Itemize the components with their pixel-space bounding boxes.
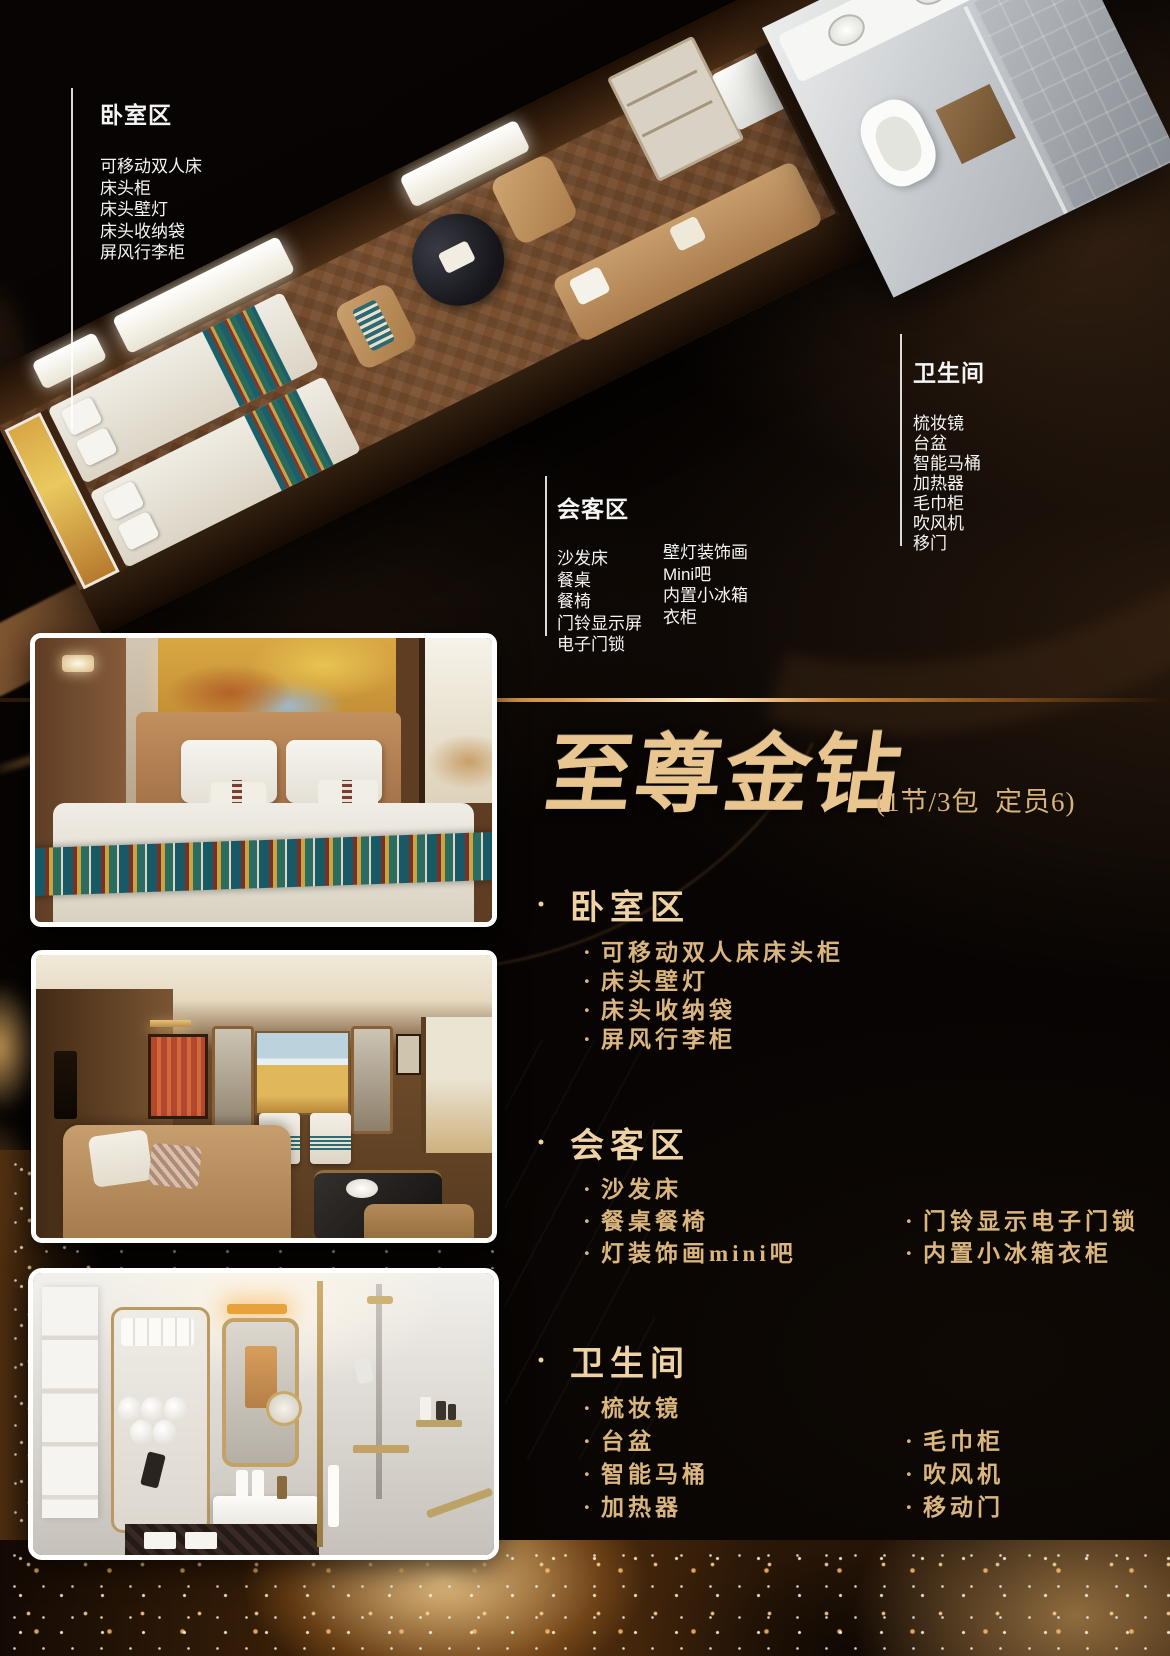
capacity-note: (1节/3包 定员6) [876, 780, 1075, 819]
plan-item: 床头收纳袋 [100, 221, 202, 243]
sparkle-dots [95, 1243, 525, 1269]
section-heading-bathroom: 卫生间 [534, 1336, 690, 1385]
feature-item: 内置小冰箱衣柜 [905, 1238, 1139, 1270]
photo-shampoo-bottle [448, 1404, 456, 1420]
section-heading-text: 卧室区 [570, 880, 690, 929]
plan-item: 餐椅 [557, 591, 642, 613]
photo-cabinet-towel [185, 1532, 217, 1549]
photo-towel-roll [130, 1420, 153, 1445]
section-heading-bedroom: 卧室区 [534, 880, 690, 929]
feature-item: 吹风机 [905, 1458, 1004, 1491]
plan-item: 吹风机 [913, 514, 985, 534]
plan-bathroom-title: 卫生间 [913, 354, 985, 388]
plan-lounge-label: 会客区 [557, 490, 629, 524]
product-title: 至尊金钻 [539, 704, 913, 829]
section-heading-text: 卫生间 [570, 1336, 690, 1385]
photo-window [421, 1017, 497, 1153]
section-heading-lounge: 会客区 [534, 1118, 690, 1167]
plan-item: 屏风行李柜 [100, 242, 202, 264]
plan-item: 内置小冰箱 [663, 585, 748, 607]
photo-small-frame [396, 1034, 421, 1075]
photo-window [419, 638, 497, 803]
feature-item: 屏风行李柜 [583, 1025, 844, 1054]
feature-item: 门铃显示电子门锁 [905, 1206, 1139, 1238]
leader-line-bathroom [900, 334, 902, 546]
photo-shampoo-bottle [436, 1401, 445, 1419]
lounge-photo [31, 950, 497, 1243]
plan-bedroom-label: 卧室区 可移动双人床 床头柜 床头壁灯 床头收纳袋 屏风行李柜 [100, 96, 202, 264]
plan-item: 电子门锁 [557, 634, 642, 656]
feature-item: 移动门 [905, 1491, 1004, 1524]
photo-wall-lamp [150, 1020, 191, 1027]
photo-folded-towels [121, 1318, 195, 1346]
photo-hanging-towel [328, 1465, 339, 1527]
feature-item: 可移动双人床床头柜 [583, 938, 844, 967]
plan-item: 壁灯装饰画 [663, 542, 748, 564]
plan-item: 餐桌 [557, 570, 642, 592]
photo-soap-bottle [236, 1470, 248, 1498]
feature-item: 床头壁灯 [583, 967, 844, 996]
plan-item: 移门 [913, 534, 985, 554]
photo-shower-shelf [353, 1445, 408, 1453]
photo-mirror [351, 1026, 393, 1134]
photo-wall-lamp [62, 655, 94, 672]
plan-item: 门铃显示屏 [557, 613, 642, 635]
plan-lounge-items-left: 沙发床 餐桌 餐椅 门铃显示屏 电子门锁 [557, 548, 642, 656]
photo-patterned-pillow [148, 1142, 202, 1189]
section-lounge-items-right: 门铃显示电子门锁 内置小冰箱衣柜 [905, 1206, 1139, 1270]
photo-wall-shelf [416, 1420, 462, 1427]
plan-item: 可移动双人床 [100, 156, 202, 178]
photo-landscape-artwork [255, 1031, 350, 1114]
bath-cabinet [936, 84, 1016, 164]
photo-shelf-column [42, 1287, 97, 1518]
feature-item: 加热器 [583, 1491, 709, 1524]
plan-bathroom-items: 梳妆镜 台盆 智能马桶 加热器 毛巾柜 吹风机 移门 [913, 414, 985, 554]
plan-item: 智能马桶 [913, 454, 985, 474]
photo-mirror-light [227, 1304, 287, 1314]
feature-item: 毛巾柜 [905, 1425, 1004, 1458]
poster-page: 卧室区 可移动双人床 床头柜 床头壁灯 床头收纳袋 屏风行李柜 会客区 沙发床 … [0, 0, 1170, 1656]
plan-item: 加热器 [913, 474, 985, 494]
section-bedroom-items: 可移动双人床床头柜 床头壁灯 床头收纳袋 屏风行李柜 [583, 938, 844, 1054]
feature-item: 沙发床 [583, 1174, 797, 1206]
photo-control-panel [54, 1051, 77, 1119]
photo-mirror [212, 1026, 254, 1140]
plan-item: 沙发床 [557, 548, 642, 570]
section-bathroom-items-right: 毛巾柜 吹风机 移动门 [905, 1425, 1004, 1524]
photo-chair [364, 1204, 473, 1238]
plan-item: 床头柜 [100, 178, 202, 200]
photo-coffee-cup [346, 1179, 378, 1199]
feature-item: 智能马桶 [583, 1458, 709, 1491]
plan-bathroom-label: 卫生间 梳妆镜 台盆 智能马桶 加热器 毛巾柜 吹风机 移门 [913, 354, 985, 554]
photo-shower-column [376, 1284, 382, 1498]
photo-sink [213, 1496, 319, 1527]
feature-item: 床头收纳袋 [583, 996, 844, 1025]
plan-bedroom-title: 卧室区 [100, 96, 202, 130]
plan-bedroom-items: 可移动双人床 床头柜 床头壁灯 床头收纳袋 屏风行李柜 [100, 156, 202, 264]
bathroom-photo [28, 1268, 499, 1560]
plan-lounge-title: 会客区 [557, 490, 629, 524]
photo-towel-roll [153, 1420, 176, 1445]
plan-lounge-items-right: 壁灯装饰画 Mini吧 内置小冰箱 衣柜 [663, 542, 748, 628]
photo-red-artwork [148, 1034, 209, 1119]
plan-item: 毛巾柜 [913, 494, 985, 514]
plan-item: 衣柜 [663, 607, 748, 629]
section-heading-text: 会客区 [570, 1118, 690, 1167]
plan-item: 床头壁灯 [100, 199, 202, 221]
photo-shampoo-bottle [420, 1397, 431, 1420]
plan-item: Mini吧 [663, 564, 748, 586]
photo-magnifying-mirror [266, 1391, 302, 1425]
photo-cabinet-towel [144, 1532, 176, 1549]
feature-item: 灯装饰画mini吧 [583, 1238, 797, 1270]
photo-soap-bottle [252, 1470, 264, 1498]
plan-item: 梳妆镜 [913, 414, 985, 434]
photo-bed-stripe [310, 1136, 351, 1150]
photo-shower-head [367, 1296, 392, 1304]
plan-item: 台盆 [913, 434, 985, 454]
bedroom-photo [30, 633, 497, 927]
section-bathroom-items-left: 梳妆镜 台盆 智能马桶 加热器 [583, 1392, 709, 1524]
leader-line-bedroom [71, 88, 73, 430]
feature-item: 餐桌餐椅 [583, 1206, 797, 1238]
section-lounge-items-left: 沙发床 餐桌餐椅 灯装饰画mini吧 [583, 1174, 797, 1270]
feature-item: 梳妆镜 [583, 1392, 709, 1425]
feature-item: 台盆 [583, 1425, 709, 1458]
leader-line-lounge [545, 476, 547, 636]
photo-faucet [277, 1476, 286, 1499]
photo-sofa-pillow [87, 1129, 153, 1188]
photo-glass-frame [317, 1281, 323, 1546]
